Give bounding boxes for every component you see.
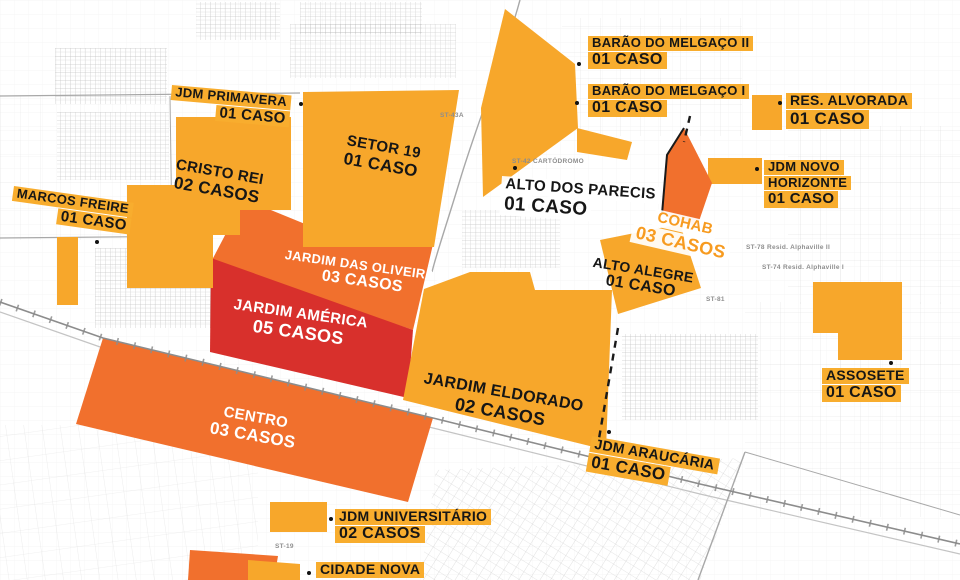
region-name: JDM UNIVERSITÁRIO (335, 509, 491, 525)
region-name: CIDADE NOVA (316, 562, 424, 578)
map-text-st43a: ST-43A (440, 112, 464, 119)
region-jdm-novo-horizonte (708, 158, 762, 184)
region-marcos-freire (57, 237, 78, 305)
marker-dot (889, 361, 893, 365)
case-count: 01 CASO (588, 52, 667, 70)
marker-dot (575, 101, 579, 105)
region-name: BARÃO DO MELGAÇO II (588, 36, 753, 51)
region-name: BARÃO DO MELGAÇO I (588, 84, 749, 99)
case-count: 01 CASO (786, 110, 869, 129)
label-res-alvorada: RES. ALVORADA 01 CASO (786, 93, 912, 129)
region-name: ASSOSETE (822, 368, 909, 384)
region-res-alvorada (752, 95, 782, 130)
label-barao-do-melgaco-ii: BARÃO DO MELGAÇO II 01 CASO (588, 36, 753, 69)
marker-dot (329, 517, 333, 521)
marker-dot (95, 240, 99, 244)
marker-dot (755, 167, 759, 171)
map-text-alphaville-2: ST-78 Resid. Alphaville II (746, 244, 830, 251)
marker-dot (299, 102, 303, 106)
label-assosete: ASSOSETE 01 CASO (822, 368, 909, 402)
case-count: 01 CASO (588, 100, 667, 118)
region-name: RES. ALVORADA (786, 93, 912, 109)
marker-dot (307, 571, 311, 575)
region-name: JDM NOVO (764, 160, 844, 175)
case-map: ST-42 CARTÓDROMO PQ EXPOSIÇÕES ST-78 Res… (0, 0, 960, 580)
label-jdm-universitario: JDM UNIVERSITÁRIO 02 CASOS (335, 509, 491, 543)
map-text-st19: ST-19 (275, 543, 294, 550)
marker-dot (577, 62, 581, 66)
marker-dot (607, 430, 611, 434)
label-barao-do-melgaco-i: BARÃO DO MELGAÇO I 01 CASO (588, 84, 749, 117)
map-canvas (0, 0, 960, 580)
map-text-st81: ST-81 (706, 296, 725, 303)
map-text-alphaville-1: ST-74 Resid. Alphaville I (762, 264, 844, 271)
case-count: 01 CASO (764, 191, 838, 208)
marker-dot (513, 166, 517, 170)
marker-dot (778, 101, 782, 105)
label-jdm-novo-horizonte: JDM NOVO HORIZONTE 01 CASO (764, 160, 851, 208)
region-name: HORIZONTE (764, 176, 851, 191)
map-text-cartodromo: ST-42 CARTÓDROMO (512, 158, 584, 165)
case-count: 01 CASO (822, 385, 901, 403)
case-count: 02 CASOS (335, 526, 425, 544)
region-jdm-universitario (270, 502, 327, 532)
label-cidade-nova: CIDADE NOVA (316, 562, 424, 578)
